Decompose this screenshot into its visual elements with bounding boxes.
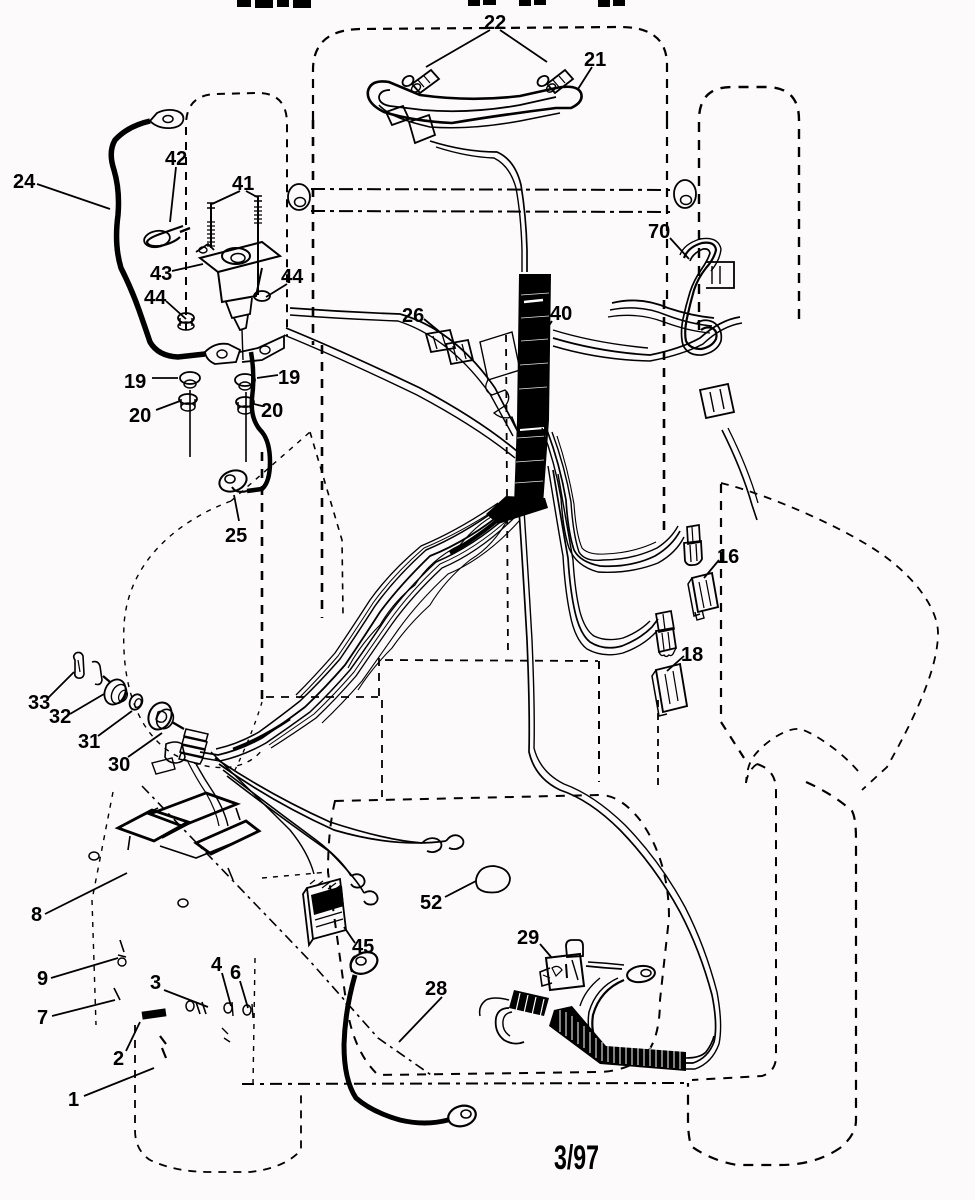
svg-text:70: 70	[648, 221, 670, 243]
svg-text:25: 25	[225, 525, 247, 547]
svg-text:20: 20	[129, 405, 151, 427]
svg-text:30: 30	[108, 754, 130, 776]
svg-text:28: 28	[425, 978, 447, 1000]
svg-text:19: 19	[278, 367, 300, 389]
svg-text:44: 44	[281, 266, 304, 288]
svg-text:2: 2	[113, 1048, 124, 1070]
svg-text:16: 16	[717, 546, 739, 568]
svg-text:40: 40	[550, 303, 572, 325]
svg-text:26: 26	[402, 305, 424, 327]
svg-text:41: 41	[232, 173, 254, 195]
svg-text:3: 3	[150, 972, 161, 994]
svg-text:19: 19	[124, 371, 146, 393]
svg-text:20: 20	[261, 400, 283, 422]
svg-text:45: 45	[352, 936, 374, 958]
svg-text:52: 52	[420, 892, 442, 914]
svg-text:22: 22	[484, 12, 506, 34]
svg-text:4: 4	[211, 954, 223, 976]
svg-text:3/97: 3/97	[554, 1139, 599, 1177]
svg-text:31: 31	[78, 731, 100, 753]
svg-text:33: 33	[28, 692, 50, 714]
svg-text:24: 24	[13, 171, 36, 193]
svg-text:18: 18	[681, 644, 703, 666]
svg-text:32: 32	[49, 706, 71, 728]
svg-text:44: 44	[144, 287, 167, 309]
svg-text:21: 21	[584, 49, 606, 71]
svg-text:9: 9	[37, 968, 48, 990]
svg-text:7: 7	[37, 1007, 48, 1029]
svg-text:43: 43	[150, 263, 172, 285]
svg-text:29: 29	[517, 927, 539, 949]
svg-text:6: 6	[230, 962, 241, 984]
svg-text:42: 42	[165, 148, 187, 170]
svg-text:8: 8	[31, 904, 42, 926]
svg-text:1: 1	[68, 1089, 79, 1111]
